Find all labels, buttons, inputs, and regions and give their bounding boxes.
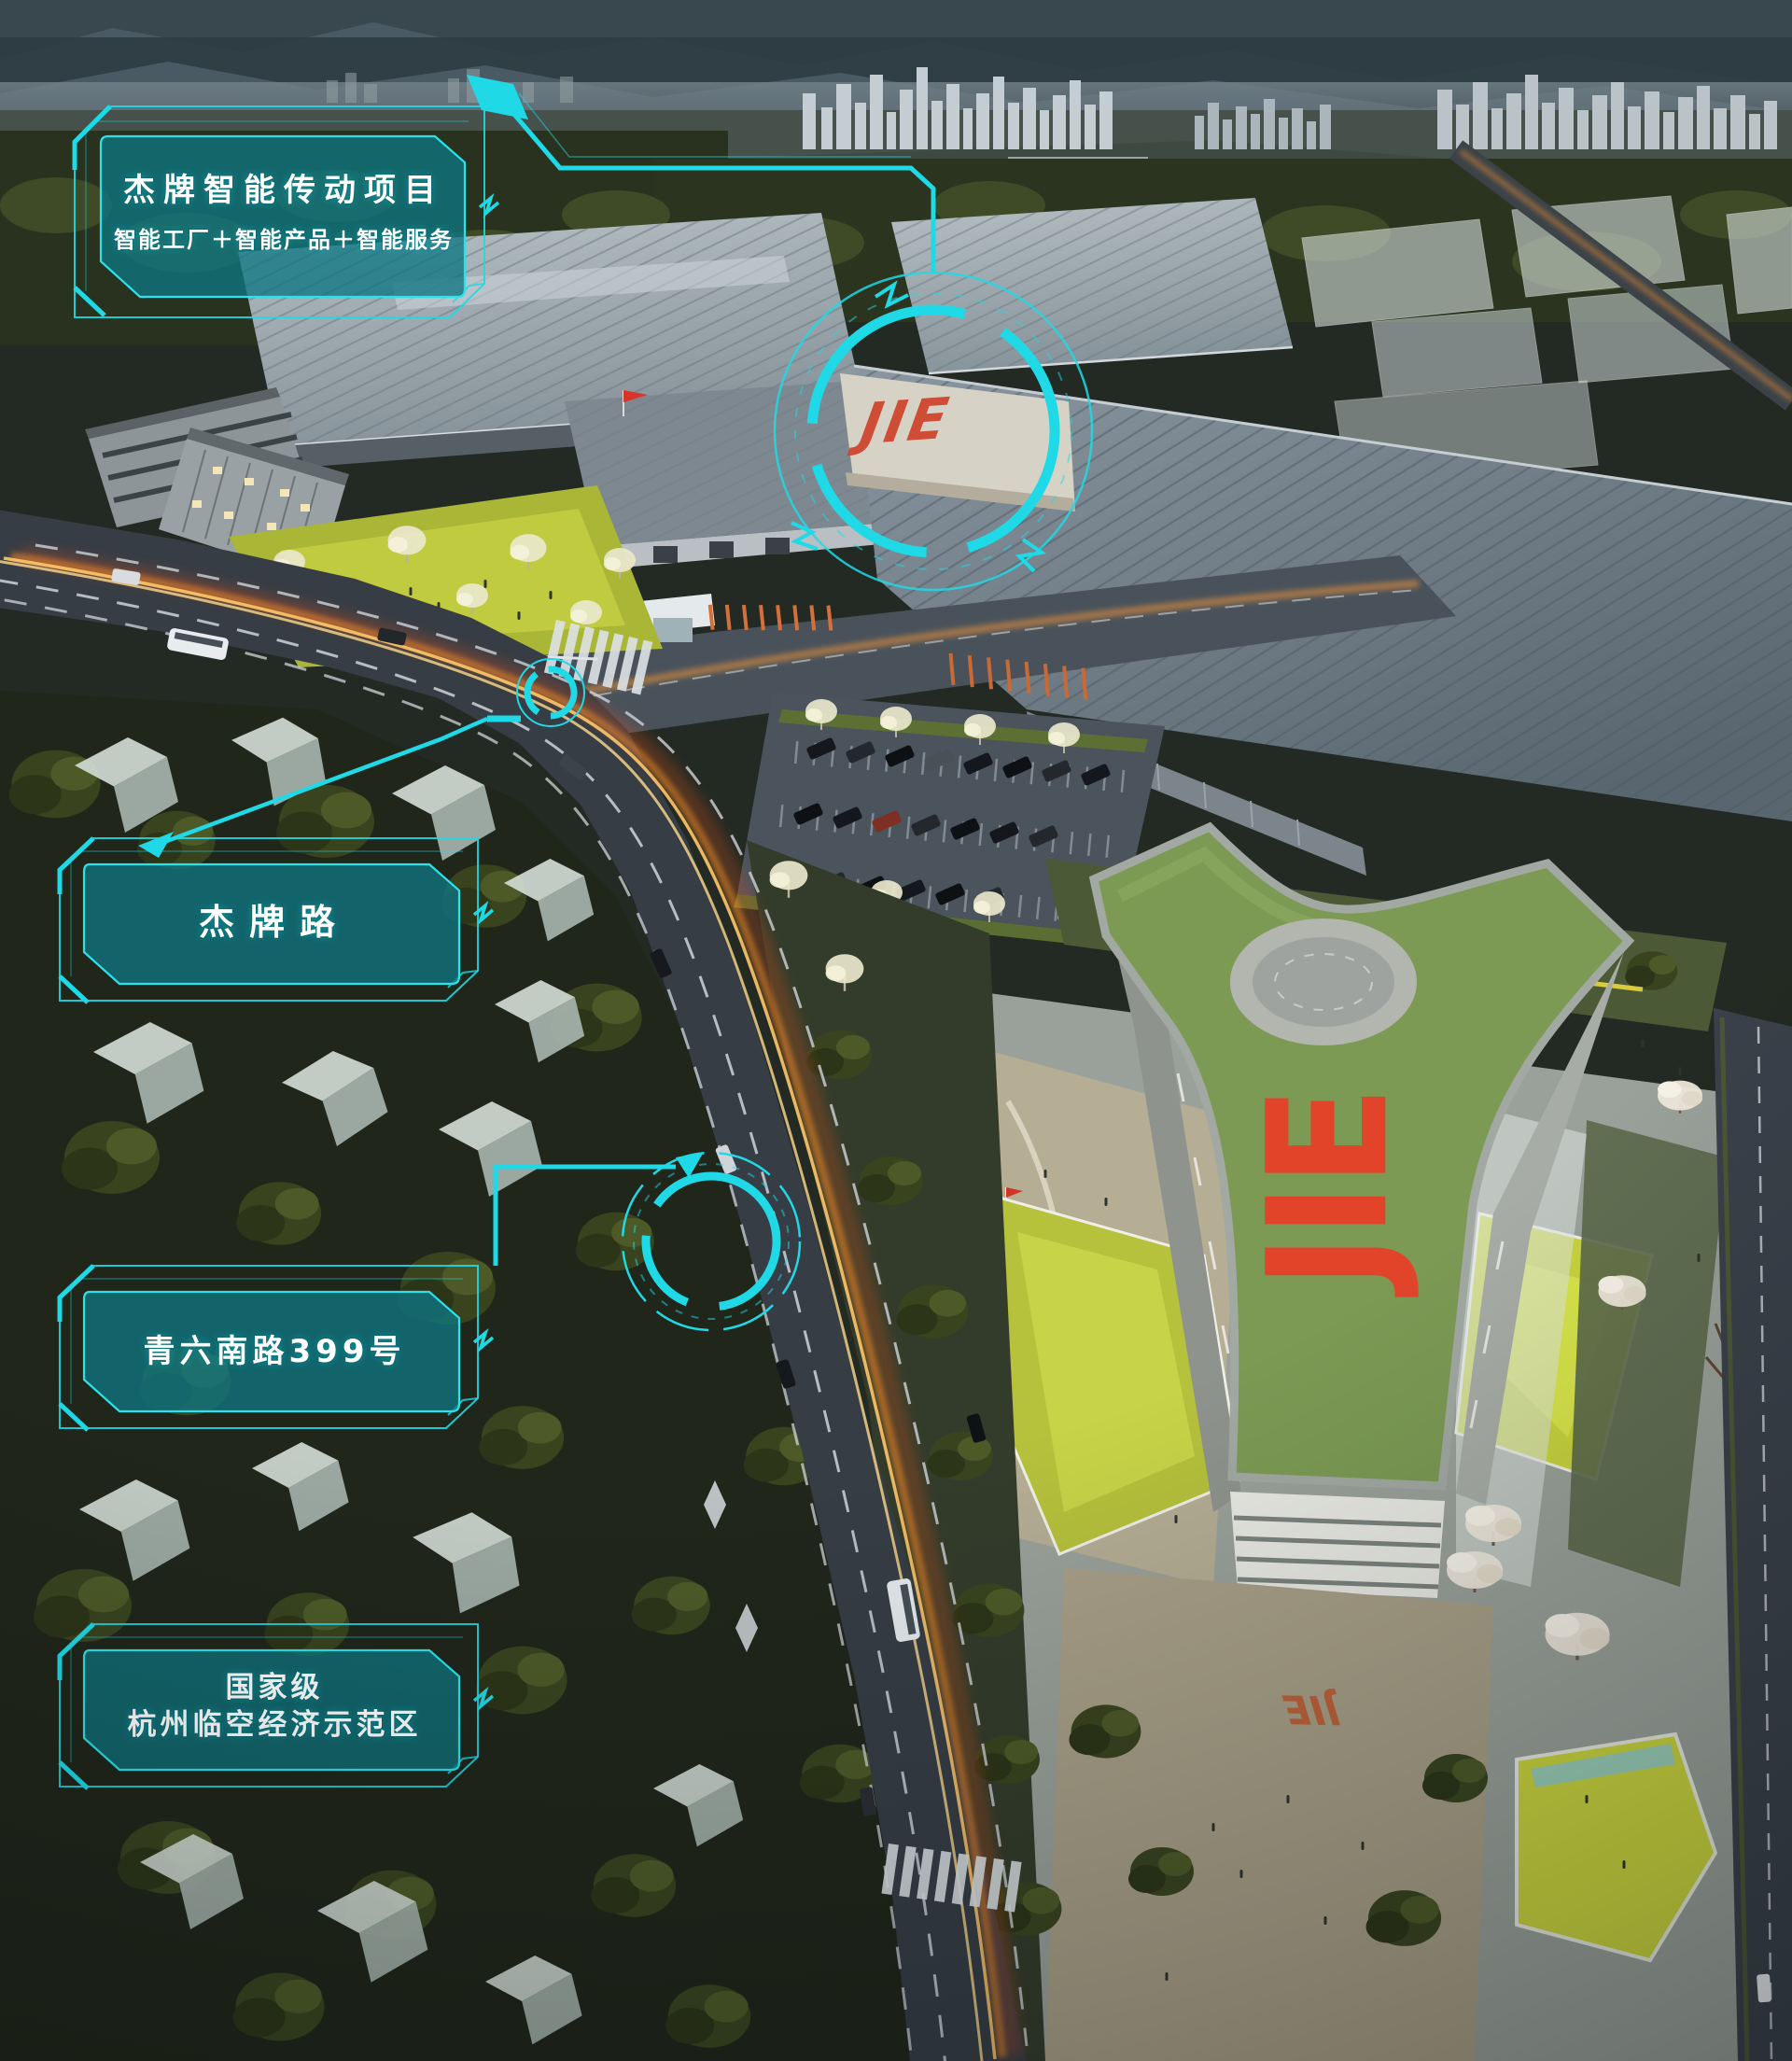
jie-ground-logo: JIE: [1222, 1675, 1397, 1733]
callout-zone-line1: 国家级: [86, 1669, 463, 1706]
factory-hall-upper-right: [891, 198, 1293, 373]
callout-project: 杰牌智能传动项目 智能工厂＋智能产品＋智能服务: [97, 170, 470, 256]
callout-address-label: 青六南路399号: [86, 1331, 463, 1372]
aerial-rendering: 杰牌智能传动项目 智能工厂＋智能产品＋智能服务 杰牌路 青六南路399号 国家级…: [0, 0, 1792, 2061]
jie-facade-logo: JIE: [854, 380, 1035, 468]
scene-layer: [0, 0, 1792, 2061]
jie-roof-logo: JIE: [1228, 1030, 1430, 1348]
callout-zone-line2: 杭州临空经济示范区: [86, 1706, 463, 1744]
white-car: [1757, 1974, 1771, 2003]
callout-project-subtitle: 智能工厂＋智能产品＋智能服务: [97, 224, 470, 256]
hq-entrance-plaza: [1045, 1551, 1503, 2061]
callout-road-label: 杰牌路: [86, 902, 463, 943]
callout-project-title: 杰牌智能传动项目: [97, 170, 470, 211]
callout-zone: 国家级 杭州临空经济示范区: [86, 1669, 463, 1744]
jie-roof-logo-text: JIE: [1233, 1089, 1425, 1289]
